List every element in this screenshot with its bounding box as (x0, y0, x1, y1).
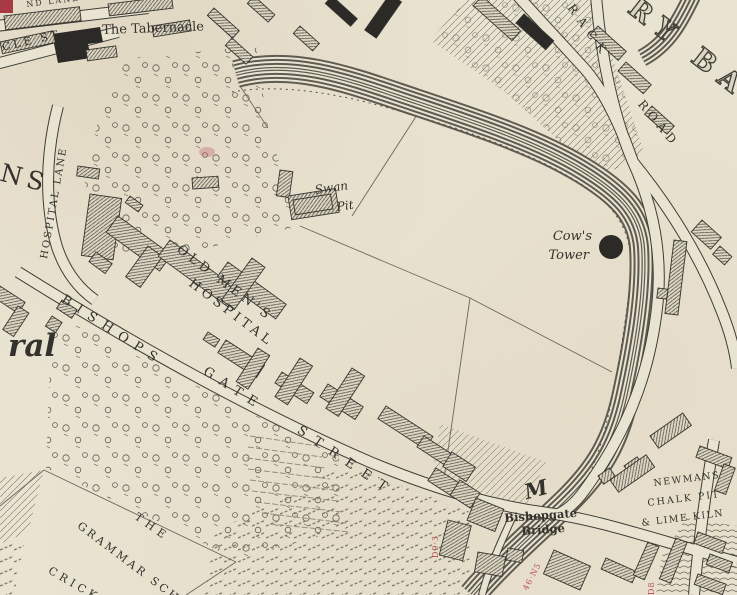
red-benchmark-3: D8 (648, 581, 656, 595)
label-fragment-cathedral: ral (8, 331, 56, 362)
red-benchmark-1: D9·3 (432, 535, 440, 558)
poi-label-cows: Cow's (544, 230, 592, 243)
poi-label-pit: Pit (336, 199, 354, 213)
strips-bottom-left (0, 534, 26, 595)
cows-tower-marker (599, 235, 623, 259)
poi-label-tower: Tower (541, 249, 589, 262)
red-corner-patch (0, 0, 13, 13)
map-artwork (0, 0, 737, 595)
poi-label-bridge: Bridge (521, 523, 565, 538)
plots-bottom-left (0, 470, 44, 544)
poi-label-tabernacle: The Tabernacle (102, 20, 204, 37)
red-smudge (199, 147, 215, 157)
river-letter-m: M (522, 476, 550, 502)
map-canvas: ND LANE CLE ST. The Tabernacle NS HOSPIT… (0, 0, 737, 595)
